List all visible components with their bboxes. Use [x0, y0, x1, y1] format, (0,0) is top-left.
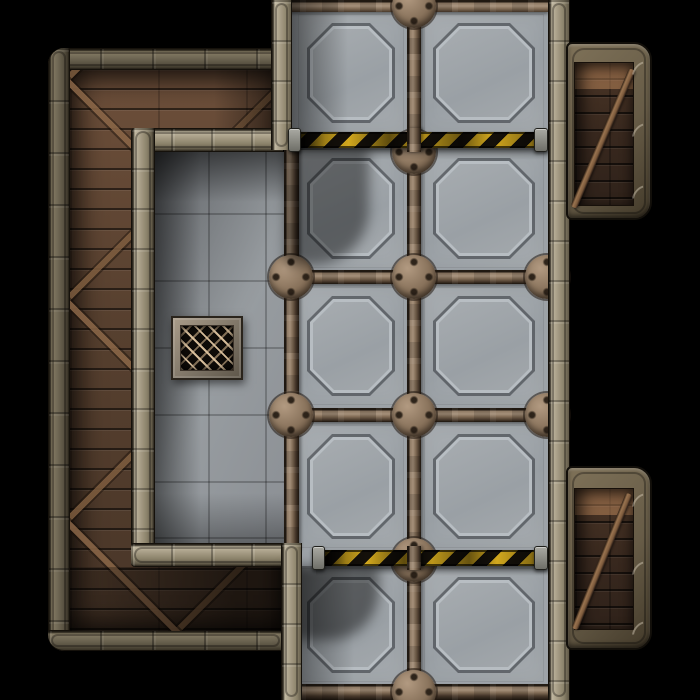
shadow-tiles-north [155, 152, 284, 202]
map-tile-canvas [0, 0, 700, 700]
stripe-holder-south-west [312, 546, 325, 570]
seam-center-vertical [407, 0, 421, 700]
outer-wall-west [48, 48, 70, 651]
stripe-holder-north-east [534, 128, 548, 152]
outer-wall-south [48, 630, 283, 651]
outer-wall-north [48, 48, 283, 70]
alcove-southeast [566, 466, 652, 650]
alcove-northeast [566, 42, 652, 220]
grate-mesh [180, 325, 234, 371]
caution-stripe-south [316, 550, 548, 566]
floor-grate [171, 316, 243, 380]
inner-wall-west [131, 128, 155, 567]
stripe-holder-north-west [288, 128, 301, 152]
seam-patch-over-north-stripe [407, 128, 421, 152]
seam-patch-over-south-stripe [407, 546, 421, 570]
stripe-holder-south-east [534, 546, 548, 570]
shadow-tiles-south [155, 493, 284, 543]
seam-west-vertical [284, 147, 299, 551]
corridor-wall-southwest [281, 543, 302, 700]
